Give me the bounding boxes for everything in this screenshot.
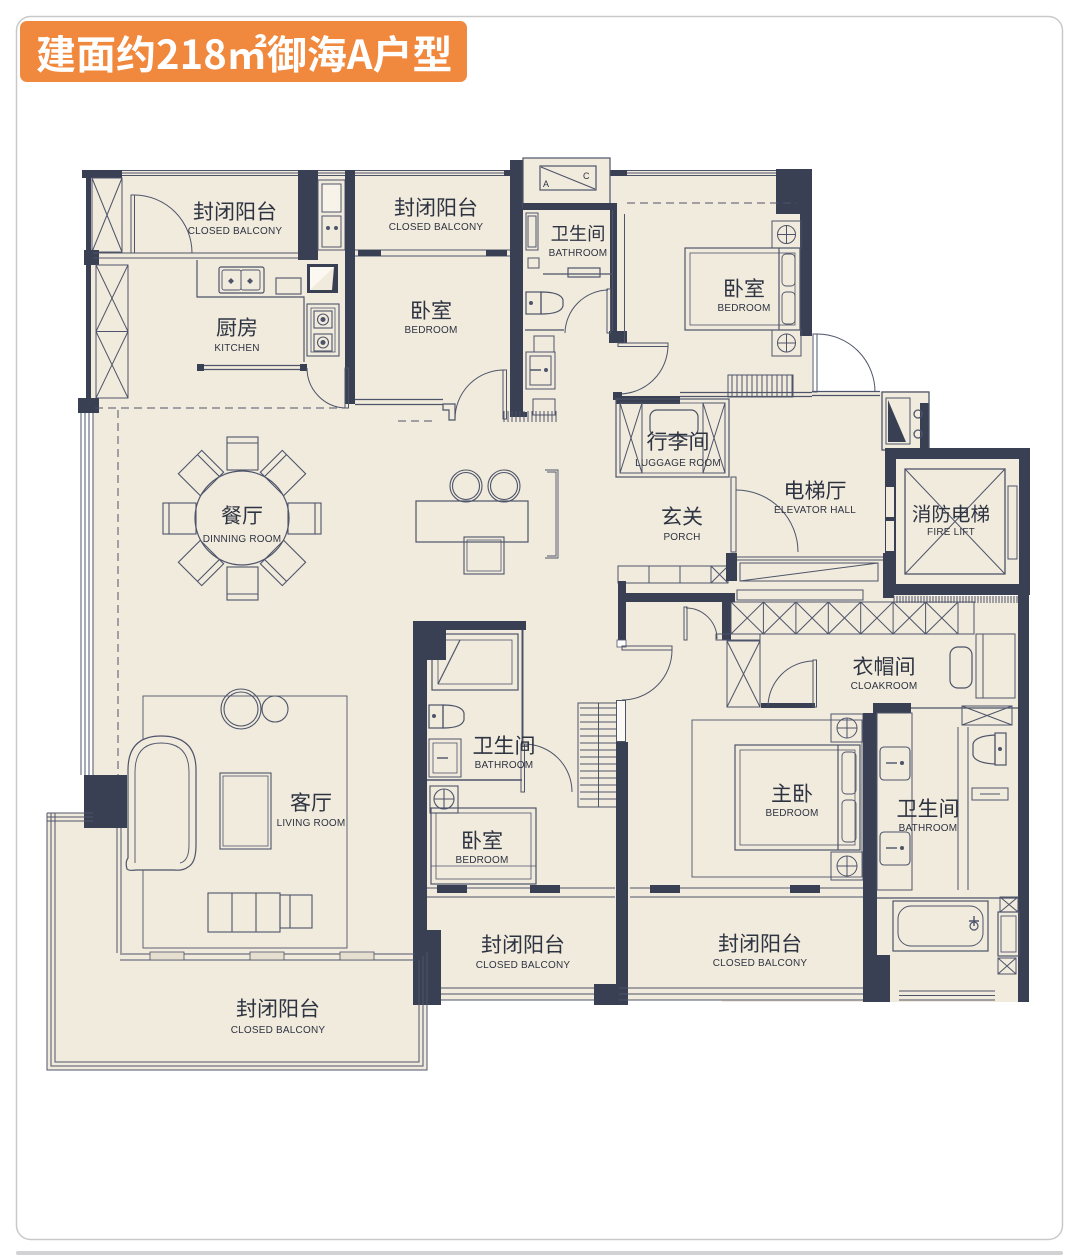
svg-text:DINNING ROOM: DINNING ROOM: [203, 534, 282, 545]
svg-text:CLOAKROOM: CLOAKROOM: [851, 681, 918, 692]
svg-text:BEDROOM: BEDROOM: [455, 855, 508, 866]
svg-text:LUGGAGE ROOM: LUGGAGE ROOM: [635, 458, 721, 469]
svg-text:CLOSED BALCONY: CLOSED BALCONY: [476, 960, 571, 971]
svg-text:KITCHEN: KITCHEN: [214, 343, 259, 354]
svg-text:BATHROOM: BATHROOM: [549, 248, 608, 259]
svg-text:BEDROOM: BEDROOM: [404, 325, 457, 336]
svg-text:BATHROOM: BATHROOM: [475, 760, 534, 771]
svg-text:BEDROOM: BEDROOM: [717, 303, 770, 314]
svg-text:C: C: [583, 171, 590, 181]
svg-text:BATHROOM: BATHROOM: [899, 823, 958, 834]
svg-text:CLOSED BALCONY: CLOSED BALCONY: [231, 1025, 326, 1036]
svg-text:CLOSED BALCONY: CLOSED BALCONY: [389, 222, 484, 233]
svg-text:CLOSED BALCONY: CLOSED BALCONY: [713, 958, 808, 969]
svg-text:ELEVATOR HALL: ELEVATOR HALL: [774, 505, 856, 516]
svg-text:A: A: [543, 179, 549, 189]
svg-text:CLOSED BALCONY: CLOSED BALCONY: [188, 226, 283, 237]
svg-text:LIVING ROOM: LIVING ROOM: [277, 818, 346, 829]
svg-text:BEDROOM: BEDROOM: [765, 808, 818, 819]
svg-text:FIRE LIFT: FIRE LIFT: [927, 527, 975, 538]
svg-text:PORCH: PORCH: [663, 532, 700, 543]
